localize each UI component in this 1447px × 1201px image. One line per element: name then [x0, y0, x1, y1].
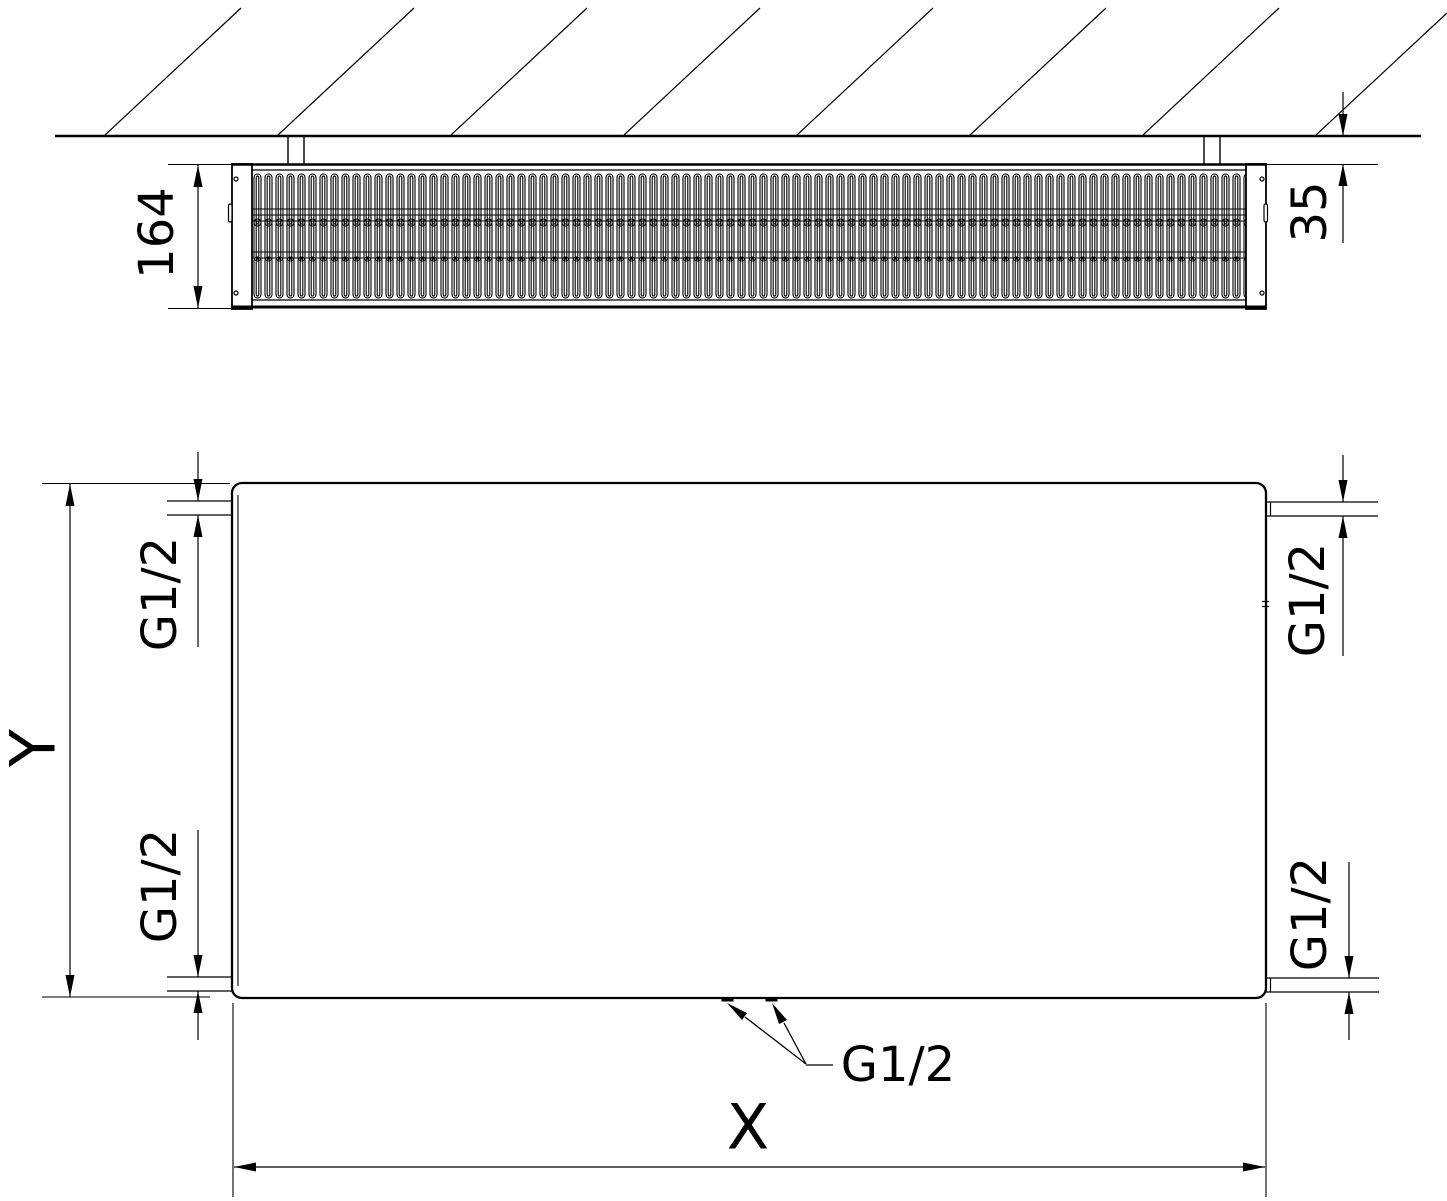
connection-stub-top-right	[1266, 502, 1378, 516]
thread-label-bottom-center: G1/2	[841, 1037, 955, 1093]
thread-label-top-right: G1/2	[1280, 543, 1336, 657]
dim-thread-top-right: G1/2	[1280, 455, 1348, 657]
radiator-top-view	[229, 164, 1268, 309]
dim-height: Y	[0, 484, 230, 998]
dim-thread-top-left: G1/2	[132, 452, 203, 651]
thread-label-bottom-right: G1/2	[1282, 857, 1338, 971]
mounting-bracket-right	[1204, 137, 1220, 164]
arrowhead-up	[194, 165, 203, 187]
radiator-technical-drawing: 164 35	[0, 0, 1447, 1201]
dim-thread-bottom-left: G1/2	[132, 829, 203, 1040]
arrowhead-down	[1339, 114, 1348, 136]
end-plate-right	[1246, 164, 1266, 309]
connection-stub-top-left	[167, 501, 232, 515]
dim-width-label: X	[727, 1091, 769, 1164]
front-panel	[232, 483, 1266, 998]
connection-stub-bottom-right	[1266, 978, 1379, 992]
thread-label-bottom-left: G1/2	[132, 829, 188, 943]
thread-label-top-left: G1/2	[132, 537, 188, 651]
radiator-front-view	[232, 483, 1269, 998]
mounting-bracket-left	[288, 137, 304, 164]
dim-thread-bottom-right: G1/2	[1282, 857, 1354, 1040]
arrowhead-down	[194, 286, 203, 308]
connection-stub-bottom-left	[167, 977, 232, 991]
wall-hatching	[105, 8, 1447, 135]
leader-thread-bottom-center: G1/2	[727, 1003, 955, 1093]
dim-width: X	[233, 1003, 1266, 1197]
dim-depth: 164	[129, 165, 232, 309]
dim-wall-gap-label: 35	[1282, 181, 1338, 242]
end-plate-left	[232, 164, 252, 309]
dim-wall-gap: 35	[1266, 92, 1378, 243]
convector-fins	[252, 173, 1246, 299]
wall-section	[55, 8, 1447, 136]
dim-depth-label: 164	[129, 187, 185, 279]
dim-height-label: Y	[0, 729, 70, 768]
